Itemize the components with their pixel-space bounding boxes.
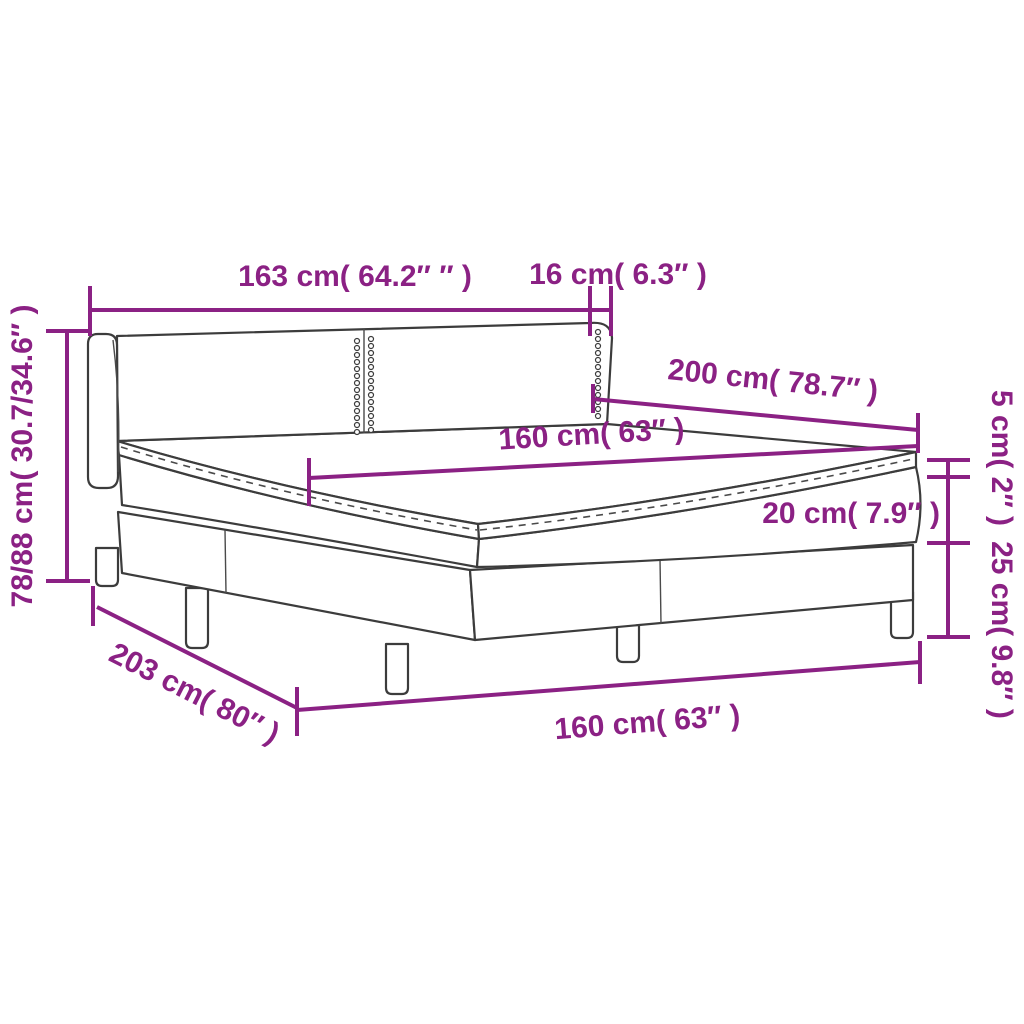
- bed-diagram-svg: 163 cm( 64.2″ ″ ) 16 cm( 6.3″ ) 78/88 cm…: [0, 0, 1024, 1024]
- bed-leg: [186, 588, 208, 648]
- dimension-diagram: 163 cm( 64.2″ ″ ) 16 cm( 6.3″ ) 78/88 cm…: [0, 0, 1024, 1024]
- headboard-side-panel: [88, 334, 118, 488]
- dim-label-total-length: 203 cm( 80″ ): [104, 637, 285, 751]
- dim-label-headboard-width: 163 cm( 64.2″ ″ ): [238, 260, 472, 293]
- dim-label-mattress-height: 20 cm( 7.9″ ): [762, 497, 940, 530]
- base-seam-left: [225, 530, 226, 593]
- dim-label-mattress-width-bottom: 160 cm( 63″ ): [553, 699, 741, 747]
- dim-label-total-height: 78/88 cm( 30.7/34.6″ ): [6, 305, 39, 608]
- dim-label-topper-height: 5 cm( 2″ ): [985, 390, 1018, 526]
- dim-label-bed-length: 200 cm( 78.7″ ): [666, 353, 879, 408]
- bed-leg: [96, 548, 118, 586]
- base-seam-right: [660, 559, 661, 624]
- dim-label-base-height: 25 cm( 9.8″ ): [985, 541, 1018, 719]
- dim-headboard-width: 163 cm( 64.2″ ″ ) 16 cm( 6.3″ ): [90, 258, 707, 336]
- dim-total-height: 78/88 cm( 30.7/34.6″ ): [6, 305, 90, 608]
- bed-leg: [386, 644, 408, 694]
- dim-label-headboard-wing: 16 cm( 6.3″ ): [529, 258, 707, 291]
